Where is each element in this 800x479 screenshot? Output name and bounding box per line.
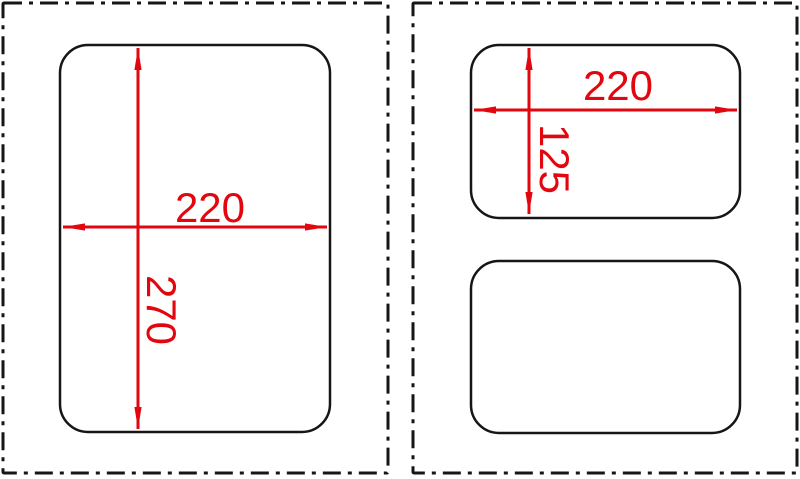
left-height-dimension-label: 270	[138, 275, 185, 345]
right-bottom-cutout-outline	[471, 261, 740, 433]
right-height-dimension-label: 125	[531, 124, 578, 194]
left-width-dimension-label: 220	[175, 184, 245, 231]
technical-drawing: 220 270 220 125	[0, 0, 800, 479]
technical-drawing-canvas: 220 270 220 125	[0, 0, 800, 479]
right-width-dimension-label: 220	[583, 62, 653, 109]
left-cutout-outline	[60, 45, 330, 432]
